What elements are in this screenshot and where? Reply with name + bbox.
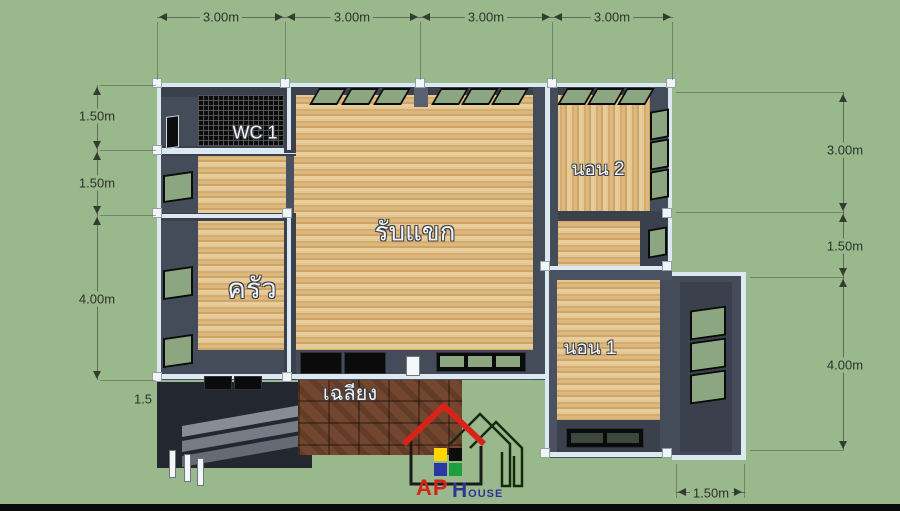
window-pane (571, 433, 603, 443)
dim-bottom-right: 1.50m (690, 486, 732, 501)
dim-arrow (275, 13, 283, 21)
wall-junction-post (662, 208, 672, 218)
porch-post (184, 454, 191, 482)
wall-junction-post (662, 448, 672, 458)
dim-arrow (93, 206, 101, 214)
living-sliding-panel (300, 352, 342, 374)
dim-top-3: 3.00m (465, 10, 507, 25)
dim-arrow (839, 214, 847, 222)
dim-arrow (839, 268, 847, 276)
extension-window (690, 337, 726, 372)
dim-arrow (554, 13, 562, 21)
right-extension-top-plate (672, 272, 746, 276)
room-label-kitchen: ครัว (227, 267, 277, 311)
wc-bottom-wall-plate (157, 148, 296, 154)
wc-window (166, 115, 179, 149)
bedroom2-window (650, 168, 669, 200)
dim-arrow (93, 217, 101, 225)
dim-arrow (93, 371, 101, 379)
extension-line (750, 450, 844, 451)
door-post (406, 356, 420, 376)
dim-left-3: 4.00m (76, 292, 118, 307)
room-label-bedroom1: นอน 1 (563, 333, 616, 363)
corridor-window (163, 171, 193, 203)
extension-line (100, 150, 156, 151)
wall-junction-post (540, 261, 550, 271)
bedroom2-floor (558, 95, 650, 211)
right-extension-right-plate (741, 274, 746, 458)
window-pane (440, 356, 464, 367)
extension-line (676, 212, 844, 213)
wall-junction-post (662, 261, 672, 271)
dim-right-1: 3.00m (824, 143, 866, 158)
dim-arrow (734, 488, 742, 496)
dim-left-partial: 1.5 (131, 392, 155, 407)
dim-arrow (93, 87, 101, 95)
kitchen-top-wall-plate (157, 214, 296, 218)
wall-junction-post (666, 78, 676, 88)
dim-arrow (159, 13, 167, 21)
door-mat (234, 376, 262, 390)
extension-line (552, 22, 553, 80)
bedroom1-top-plate (545, 266, 672, 270)
kitchen-living-wall-plate (287, 216, 291, 376)
extension-window (690, 305, 726, 340)
dim-arrow (422, 13, 430, 21)
extension-line (100, 215, 156, 216)
extension-line (676, 464, 677, 498)
dimension-line-left (97, 85, 98, 380)
corridor-floor (198, 153, 286, 213)
porch-post (169, 450, 176, 478)
floor-plan-canvas: WC 1 นอน 2 รับแขก ครัว นอน 1 เฉลียง 3.00… (0, 0, 900, 511)
extension-line (744, 464, 745, 498)
room-label-porch: เฉลียง (323, 377, 377, 409)
bedroom1-right-wall (660, 280, 672, 452)
window-pane (496, 356, 520, 367)
logo-square-green (449, 463, 462, 476)
dim-arrow (663, 13, 671, 21)
logo-brand-house: House (452, 479, 503, 503)
dim-left-2: 1.50m (76, 176, 118, 191)
dim-arrow (839, 441, 847, 449)
wall-junction-post (152, 208, 162, 218)
dim-arrow (410, 13, 418, 21)
logo-square-yellow (434, 448, 447, 461)
dim-arrow (542, 13, 550, 21)
living-window-frame (436, 352, 526, 372)
door-mat (204, 376, 232, 390)
dim-right-2: 1.50m (824, 239, 866, 254)
room-label-living: รับแขก (375, 212, 456, 253)
extension-line (100, 85, 156, 86)
hall-window (648, 226, 667, 258)
wc-right-wall-plate (287, 86, 291, 150)
dim-top-4: 3.00m (591, 10, 633, 25)
hall-floor (558, 219, 640, 271)
dim-arrow (93, 152, 101, 160)
dim-top-2: 3.00m (331, 10, 373, 25)
extension-line (672, 22, 673, 80)
extension-line (100, 380, 156, 381)
extension-line (420, 22, 421, 80)
extension-line (750, 277, 844, 278)
dim-right-3: 4.00m (824, 358, 866, 373)
bedroom1-window-frame (566, 428, 644, 448)
logo-square-black (449, 448, 462, 461)
dim-arrow (93, 141, 101, 149)
bedroom2-window (650, 108, 669, 140)
window-pane (607, 433, 639, 443)
dim-top-1: 3.00m (200, 10, 242, 25)
left-wall-plate (157, 83, 161, 380)
dim-arrow (839, 203, 847, 211)
wall-junction-post (282, 208, 292, 218)
dim-arrow (839, 279, 847, 287)
bottom-border-bar (0, 504, 900, 511)
dim-left-1: 1.50m (76, 109, 118, 124)
extension-window (690, 369, 726, 404)
dim-arrow (678, 488, 686, 496)
wall-junction-post (282, 372, 292, 382)
bedroom2-window (650, 138, 669, 170)
room-label-bedroom2: นอน 2 (571, 154, 624, 184)
logo-roof-icon (404, 406, 484, 444)
kitchen-window (163, 266, 193, 300)
porch-post (197, 458, 204, 486)
extension-line (676, 92, 844, 93)
right-extension-bottom-plate (672, 455, 746, 460)
window-pane (468, 356, 492, 367)
dim-arrow (839, 94, 847, 102)
extension-line (157, 22, 158, 80)
bedroom1-bottom-plate (545, 452, 672, 457)
logo-brand-ap: AP (416, 475, 449, 501)
kitchen-window (163, 334, 193, 368)
dim-arrow (287, 13, 295, 21)
room-label-wc: WC 1 (233, 123, 278, 144)
living-sliding-panel (344, 352, 386, 374)
extension-line (285, 22, 286, 80)
wall-stub (414, 87, 428, 107)
